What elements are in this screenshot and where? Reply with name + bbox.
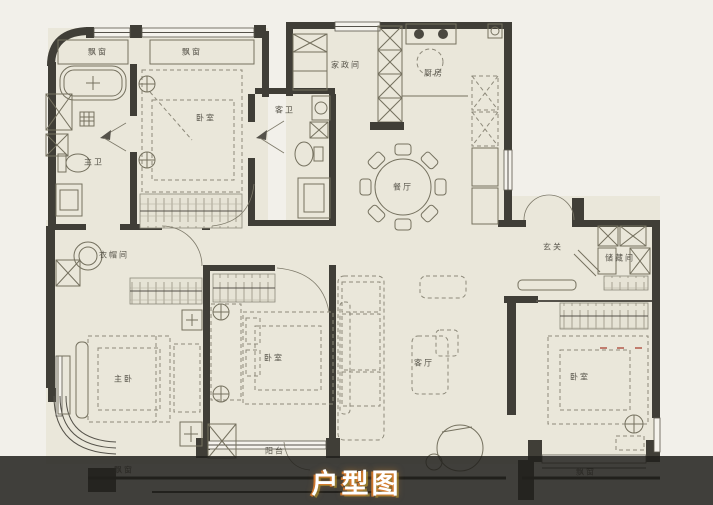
floor-area — [46, 22, 660, 464]
floor-plan-screenshot: 飘窗 飘窗 主卫 卧室 客卫 家政间 厨房 餐厅 玄关 储藏间 衣帽间 主卧 卧… — [0, 0, 713, 505]
tv-wall — [507, 303, 516, 415]
floor-plan-drawing — [0, 0, 713, 505]
page-title: 户型图 — [312, 462, 402, 501]
